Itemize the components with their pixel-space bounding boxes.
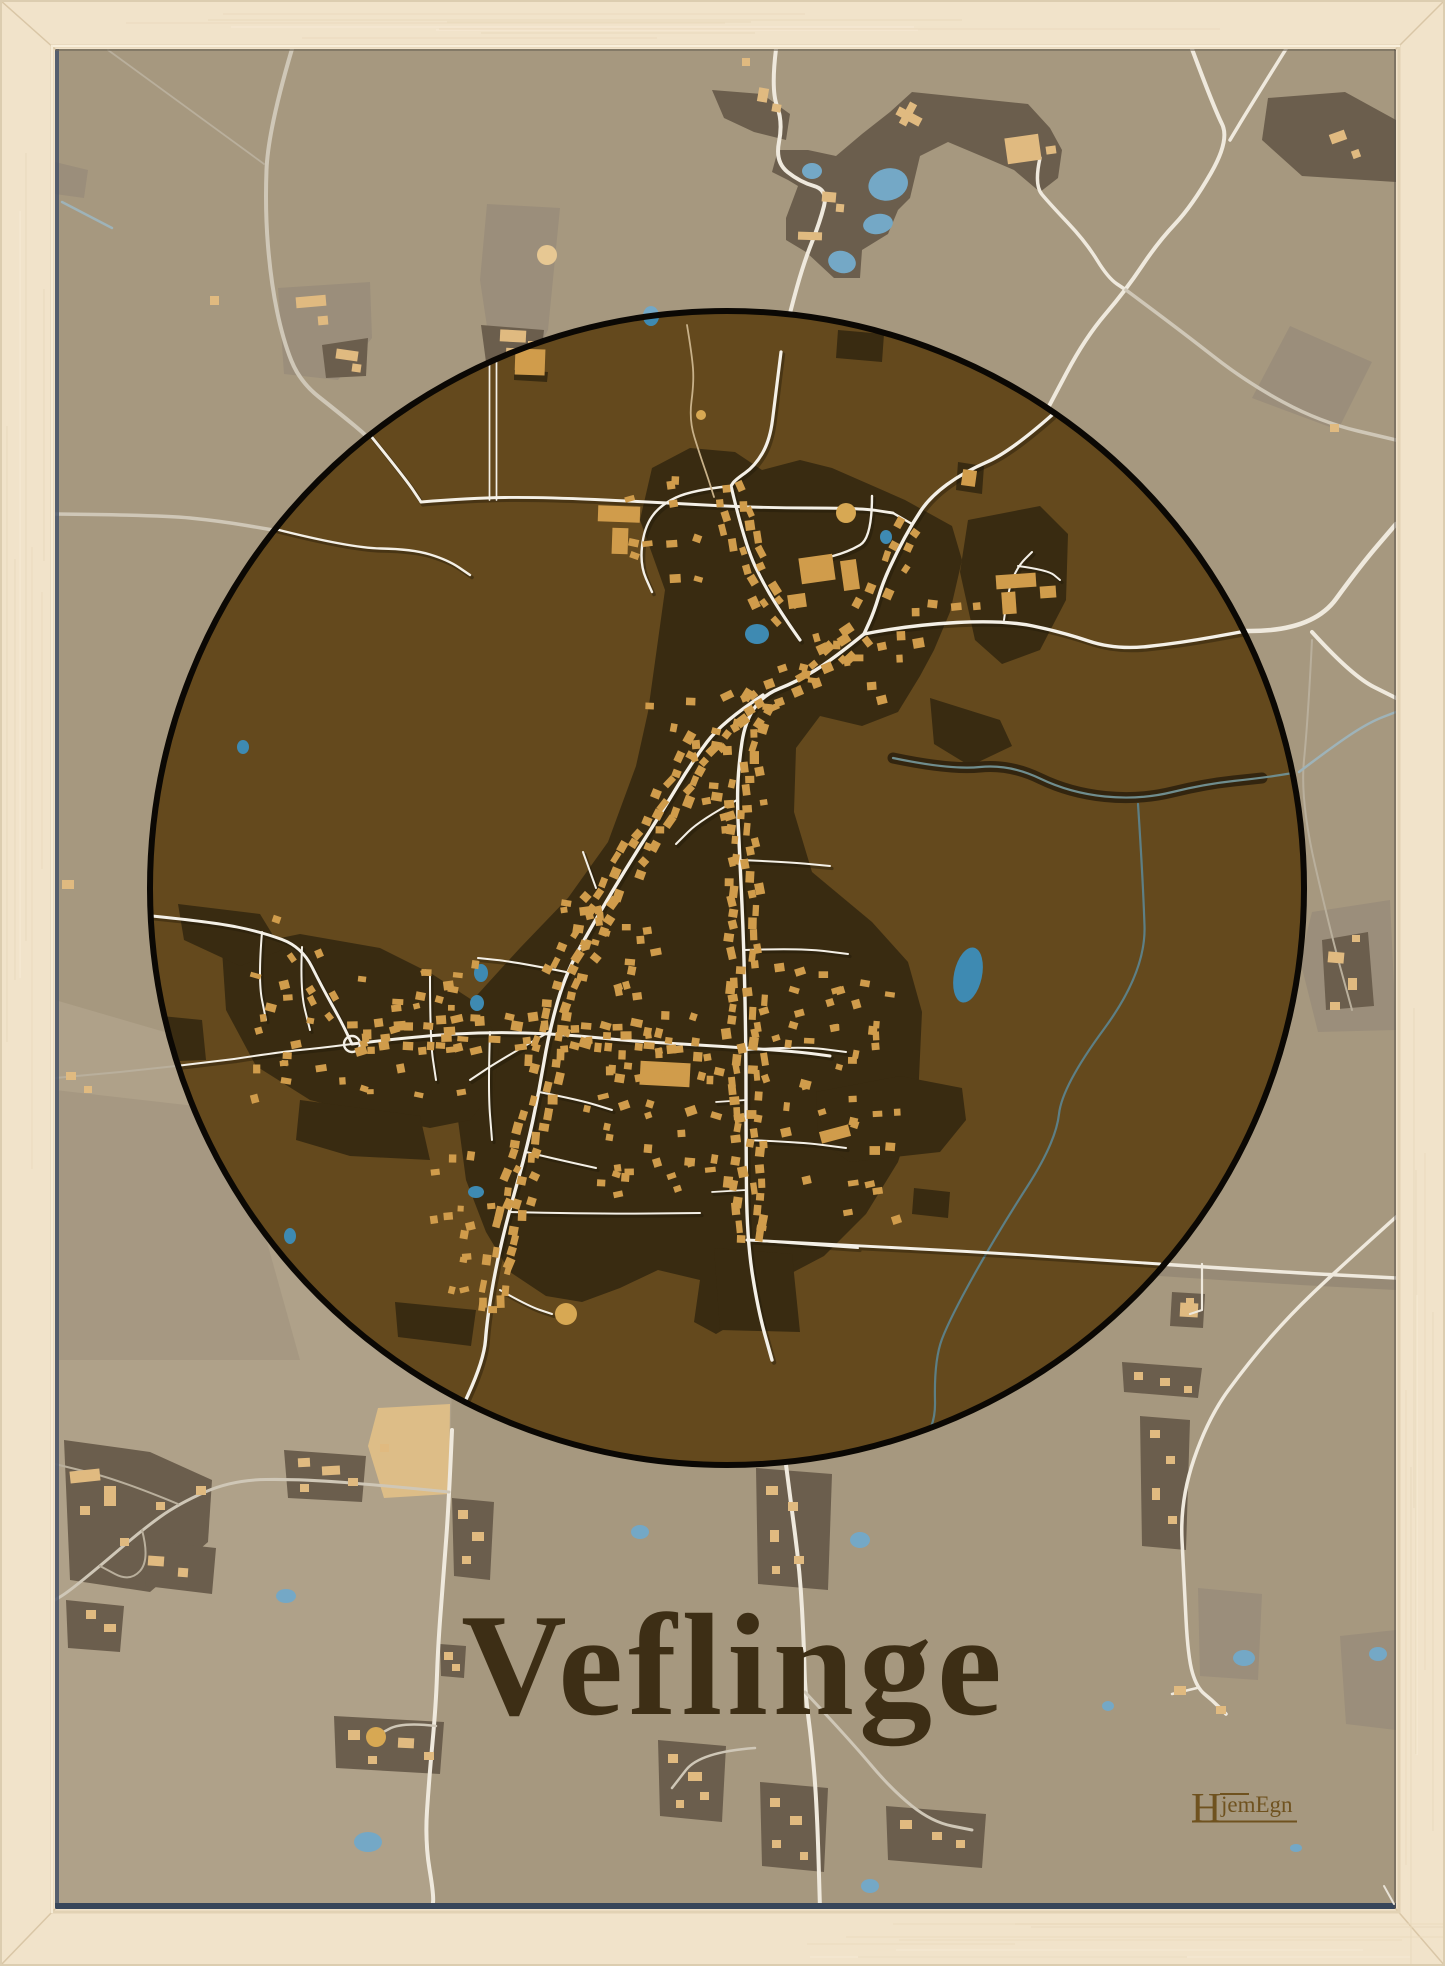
svg-text:jemEgn: jemEgn <box>1220 1792 1293 1817</box>
svg-text:H: H <box>1191 1786 1221 1832</box>
svg-text:Veflinge: Veflinge <box>461 1584 1007 1746</box>
